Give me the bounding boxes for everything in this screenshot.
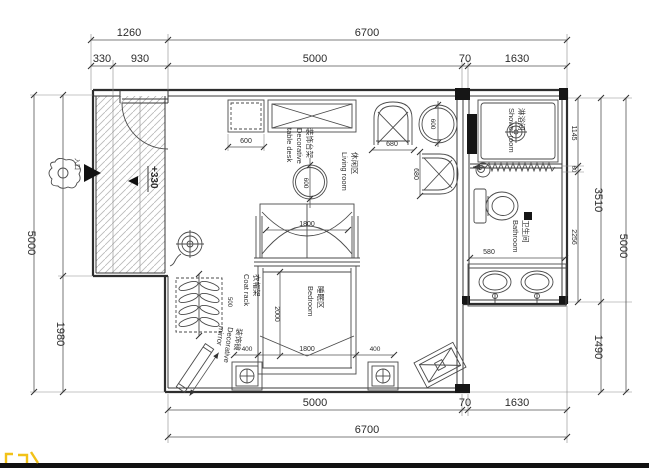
- dim-left-total: 5000: [25, 231, 37, 255]
- shower-door: [467, 114, 477, 154]
- label-living-en: Living room: [340, 152, 349, 191]
- dim-total-width-top: 6700: [355, 27, 379, 39]
- dim-wall-bottom: 70: [459, 397, 471, 409]
- label-coat-rack-en: Coat rack: [242, 274, 251, 306]
- label-deco-table-zh: 装饰台架: [305, 128, 315, 158]
- dim-entry-right-top: 930: [131, 53, 149, 65]
- floor-plan-canvas: 入口 +330: [0, 0, 649, 473]
- coat-rack: [176, 271, 222, 339]
- toilet-paper-holder: [476, 163, 490, 177]
- elevation-text: +330: [148, 166, 159, 189]
- label-deco-table-en2: table desk: [285, 128, 294, 162]
- label-shower-en: Shower room: [507, 108, 516, 153]
- label-living-room: 休闲区 Living room: [340, 152, 360, 191]
- dim-bed-length: 2000: [273, 306, 280, 322]
- dim-right-shower: 1145: [570, 125, 577, 140]
- equipment-box: [414, 342, 466, 387]
- watermark-artifact: [6, 452, 38, 463]
- dim-wall-top: 70: [459, 53, 471, 65]
- dim-vanity: 580: [483, 249, 495, 256]
- dim-total-width-bottom: 6700: [355, 424, 379, 436]
- armchair-top: [374, 102, 412, 145]
- dim-cabinet: 600: [240, 138, 252, 145]
- label-bathroom: 卫生间 Bathroom: [511, 220, 531, 253]
- label-deco-table: 装饰台架 Decorative table desk: [285, 128, 315, 164]
- nightstand-left: [232, 362, 262, 390]
- dim-top-row2: [88, 63, 570, 69]
- label-deco-table-en1: Decorative: [295, 128, 304, 164]
- bottom-bar: [0, 463, 649, 468]
- entrance-label: 入口: [73, 158, 80, 170]
- bathroom-floor-drain: [524, 212, 532, 220]
- dim-main-width-bottom: 5000: [303, 397, 327, 409]
- floor-plan-page: 入口 +330: [0, 0, 649, 473]
- label-coat-rack: 衣帽架 Coat rack: [242, 274, 262, 306]
- top-cabinet: [228, 100, 264, 132]
- decorative-mirror: [176, 344, 220, 397]
- dim-main-width-top: 5000: [303, 53, 327, 65]
- dim-right-notch: 1490: [592, 335, 604, 359]
- dim-round-chair: 600: [429, 119, 436, 130]
- toilet: [474, 189, 518, 223]
- entrance-label-zh: 入口: [73, 158, 80, 170]
- dim-right-gap: 60: [570, 166, 576, 173]
- dim-entry-left-top: 330: [93, 53, 111, 65]
- label-living-zh: 休闲区: [350, 152, 360, 175]
- dim-bed-side-right: 400: [370, 346, 381, 353]
- dim-left-notch: 1980: [54, 322, 66, 346]
- label-mirror: 装饰镜 Decorative mirror: [213, 326, 245, 365]
- dim-bath-width-top: 1630: [505, 53, 529, 65]
- label-mirror-en2: mirror: [215, 326, 226, 347]
- dim-coat-rack: 500: [226, 297, 232, 308]
- label-bathroom-en: Bathroom: [511, 220, 520, 253]
- dim-bed-side-left: 400: [242, 346, 253, 353]
- label-bedroom-zh: 睡眠区: [316, 286, 325, 309]
- dim-right-bath: 2256: [570, 229, 577, 245]
- label-coat-rack-zh: 衣帽架: [252, 274, 262, 297]
- dim-sofa-width: 680: [386, 141, 398, 148]
- dim-bed-canopy: 1800: [299, 221, 315, 228]
- floor-drain-symbol: [170, 230, 204, 266]
- dim-top-row1: [88, 37, 570, 43]
- dim-bath-width-bottom: 1630: [505, 397, 529, 409]
- armchair-right: [422, 154, 458, 194]
- label-bedroom-en: Bedroom: [306, 286, 315, 316]
- label-bathroom-zh: 卫生间: [521, 220, 531, 243]
- dim-round-table: 600: [302, 178, 309, 189]
- dim-bed-width: 1800: [299, 346, 315, 353]
- bed-canopy: [256, 204, 358, 258]
- nightstand-right: [368, 362, 398, 390]
- label-bedroom: 睡眠区 Bedroom: [306, 286, 325, 316]
- dim-entry-width-top: 1260: [117, 27, 141, 39]
- dim-right-total: 5000: [617, 234, 629, 258]
- dim-sofa-depth: 680: [412, 168, 419, 180]
- dim-right-bath-block: 3510: [592, 188, 604, 212]
- label-shower-zh: 淋浴间: [517, 108, 527, 131]
